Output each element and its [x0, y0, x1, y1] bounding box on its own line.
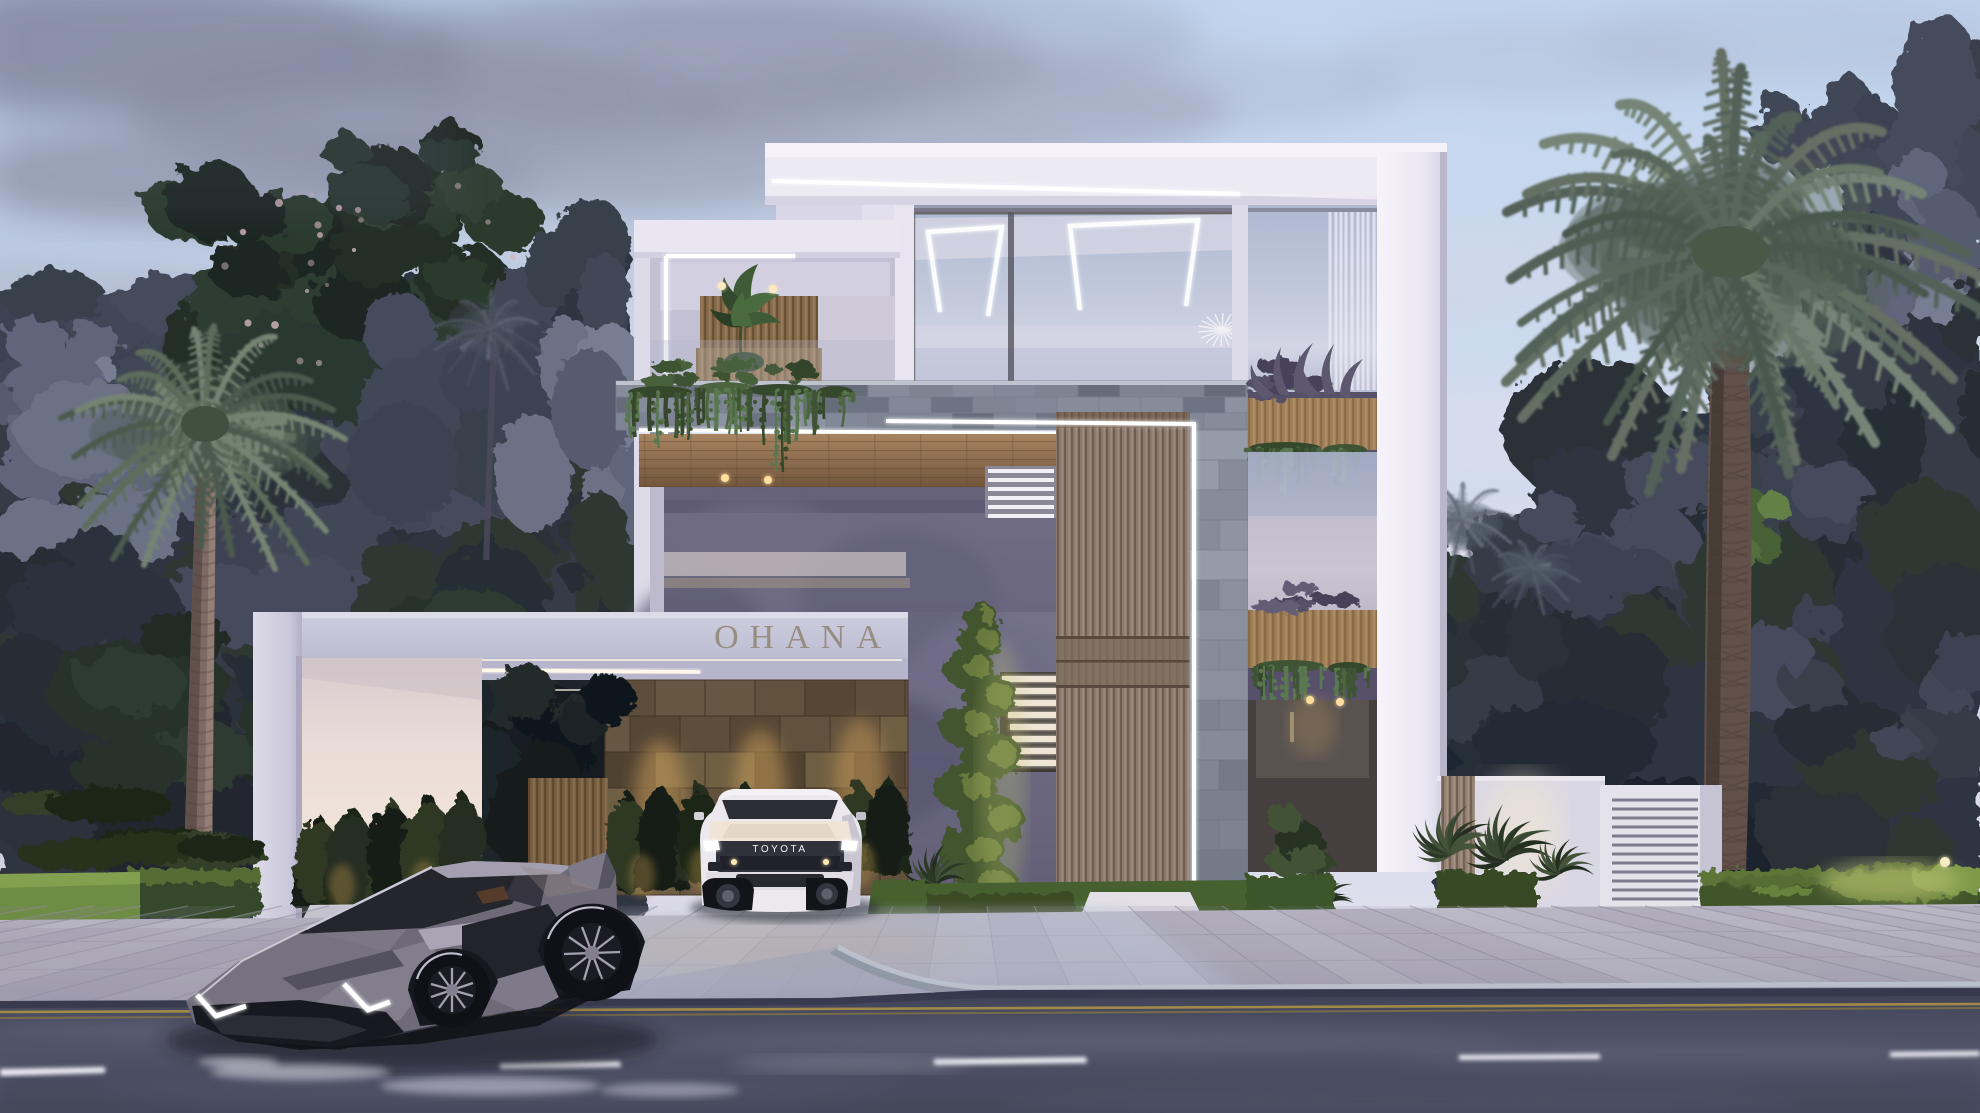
svg-text:TOYOTA: TOYOTA: [752, 844, 807, 855]
svg-text:OHANA: OHANA: [714, 619, 892, 656]
